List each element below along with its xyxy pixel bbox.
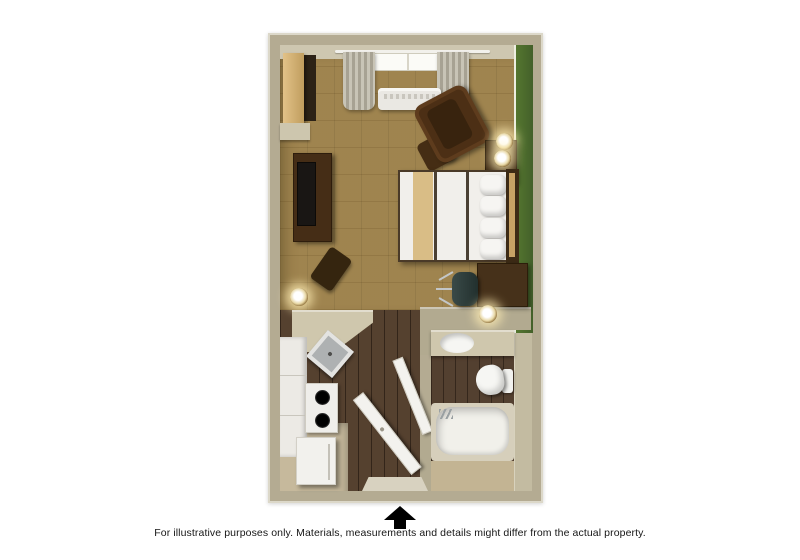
tv-console <box>293 153 332 242</box>
pillow <box>480 175 506 195</box>
stove-cooktop <box>305 383 338 433</box>
tub-faucet <box>439 409 453 419</box>
mattress-seam <box>434 172 437 260</box>
disclaimer-caption: For illustrative purposes only. Material… <box>0 527 800 539</box>
curtain-left <box>343 52 375 110</box>
table-lamp <box>496 133 513 150</box>
pillow <box>480 196 506 216</box>
desk <box>477 263 528 307</box>
bed-accent-runner <box>413 172 433 260</box>
plan-interior <box>280 45 531 491</box>
entry-threshold <box>362 477 428 491</box>
floor-plan <box>268 33 543 503</box>
table-lamp <box>494 150 511 167</box>
bathroom-vanity <box>431 330 514 356</box>
window <box>373 53 441 71</box>
office-chair-leg <box>436 288 452 290</box>
vanity-sink <box>440 333 474 353</box>
floor-plan-page: For illustrative purposes only. Material… <box>0 0 800 560</box>
burner <box>315 390 330 405</box>
burner <box>315 413 330 428</box>
floor-lamp <box>290 288 308 306</box>
right-wall-face <box>514 333 532 491</box>
bed <box>398 170 508 262</box>
office-chair <box>452 272 478 306</box>
armchair-seat <box>425 97 474 151</box>
interior-wall <box>420 307 531 330</box>
bathroom-wall-segment <box>420 330 431 355</box>
refrigerator <box>296 437 336 485</box>
pillow <box>480 239 506 259</box>
closet-wall-stub <box>280 123 310 140</box>
headboard <box>506 169 519 263</box>
arrow-head <box>384 506 416 520</box>
bathtub-surround <box>431 403 514 461</box>
closet-door <box>283 53 304 123</box>
television <box>297 162 316 226</box>
mattress-seam <box>466 172 469 260</box>
desk-lamp <box>479 305 497 323</box>
pillow <box>480 218 506 238</box>
closet-hanging-space <box>304 55 316 121</box>
bathroom-tile-floor <box>431 461 514 491</box>
